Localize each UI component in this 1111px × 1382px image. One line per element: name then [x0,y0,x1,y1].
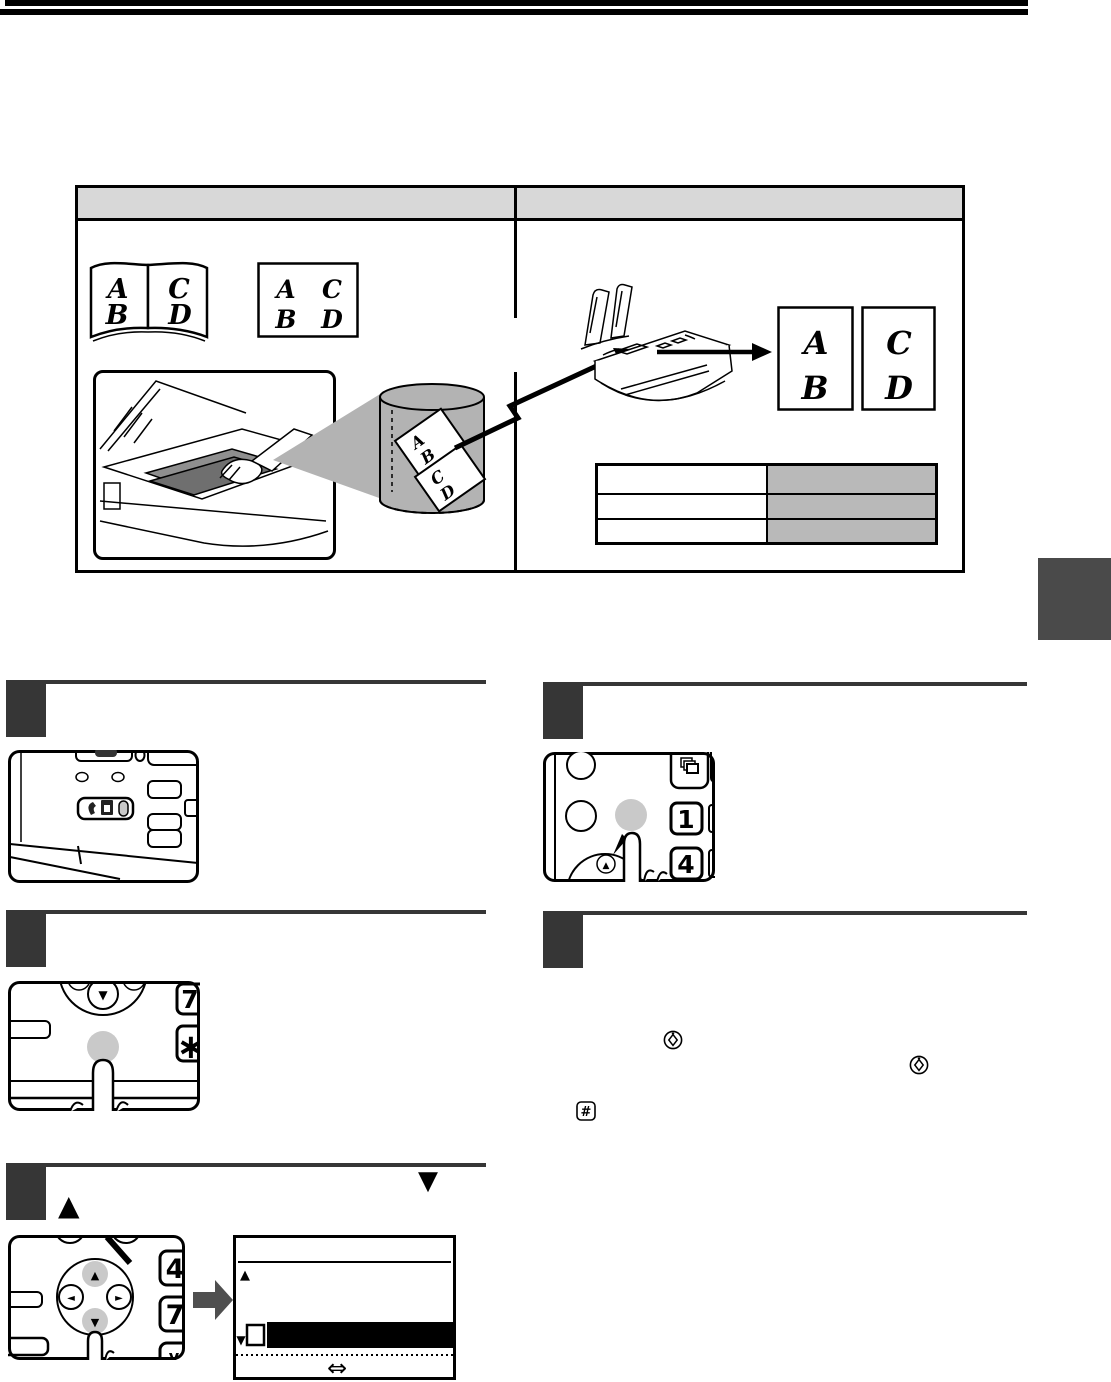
lcd-display: ▲ ▼ ⇔ [233,1235,456,1380]
copied-sheet-illustration: A C B D [257,262,359,338]
pad-down-glyph: ▼ [91,1316,100,1329]
step-2-number [6,910,46,967]
sheet-letter-c: C [322,275,342,304]
pad-up-glyph: ▲ [91,1269,100,1282]
swap-symbol: ⇔ [327,1354,347,1380]
spec-mini-table [595,463,938,545]
start-key-icon [909,1055,929,1075]
display-up-marker: ▲ [240,1268,250,1283]
sheet-letter-a: A [274,275,295,304]
pad-left-glyph: ◄ [67,1293,75,1304]
step-4-rule [543,682,1027,686]
checkbox [247,1325,264,1345]
step-3-number [6,1163,46,1220]
step-4-panel: ▲ 1 4 [543,752,715,882]
step-5-number [543,911,583,968]
manual-page: A B C D A C B D [0,0,1111,1382]
finger [93,1060,113,1111]
pressed-button [87,1031,119,1063]
fax-phone-icon [88,800,113,815]
section-tab [1038,558,1111,640]
book-letter-d: D [167,300,192,331]
mode-indicator-pill [95,750,117,757]
pressed-button [615,799,647,831]
mini-table-row [598,466,935,493]
pad-up-glyph: ▲ [603,861,610,871]
top-rule-1 [5,0,1028,6]
key-4-label: 4 [677,850,694,879]
fax-button-pill [119,801,128,816]
step-1-rule [6,680,486,684]
finger [624,833,640,882]
round-key [566,801,596,831]
projection-wedge [273,388,393,503]
led-indicator [112,773,124,782]
key-7-label: 7 [166,1300,185,1331]
mini-table-row [598,518,935,542]
mini-cell-value [768,520,935,542]
column-divider-upper [514,188,517,318]
key-partial-label: v [169,1347,180,1360]
step-3-inline-down-arrow: ▼ [418,1168,438,1194]
step-4-number [543,682,583,739]
output-arrow [652,340,777,364]
step-1-panel [8,750,199,883]
step-1-number [6,680,46,737]
step-2-rule [6,910,486,914]
key-1-label: 1 [677,805,694,834]
hash-key-label: # [581,1105,592,1120]
step-5-rule [543,911,1027,915]
pad-right-glyph: ► [115,1293,123,1304]
page2-letter-c: C [886,324,912,362]
mini-cell-label [598,520,768,542]
panel-key [148,814,181,830]
copies-icon [681,758,698,773]
key-7-label: 7 [181,985,198,1014]
led-indicator [76,773,88,782]
page1-letter-a: A [801,324,829,362]
mini-cell-label [598,495,768,518]
display-down-marker: ▼ [236,1333,246,1347]
round-key [567,752,595,779]
page1-letter-b: B [800,369,828,407]
output-page-2: C D [861,306,936,411]
book-illustration: A B C D [86,256,212,344]
cylinder-top [380,384,484,410]
table-header-row [78,188,962,221]
step-3-rule [6,1163,486,1167]
top-rule-2 [0,9,1028,15]
finger [88,1332,102,1360]
panel-key [148,781,181,798]
key-4-label: 4 [166,1254,185,1285]
mini-table-row [598,493,935,518]
key-star-label: ∗ [177,1027,200,1067]
start-key-icon [663,1030,683,1050]
block-arrow [193,1280,233,1320]
page2-letter-d: D [884,369,913,407]
mini-cell-value [768,466,935,493]
panel-key [148,830,181,847]
step-3-inline-up-arrow: ▲ [58,1192,80,1220]
output-page-1: A B [777,306,854,411]
hash-key-icon: # [576,1101,596,1121]
book-letter-b: B [105,300,129,331]
nav-down-glyph: ▼ [98,988,108,1002]
step-2-panel: ▼ 7 ∗ [8,981,200,1111]
mini-cell-value [768,495,935,518]
mini-cell-label [598,466,768,493]
step-3-panel: ▲ ◄ ► ▼ 4 7 v [8,1235,185,1360]
selection-bar [267,1322,453,1348]
